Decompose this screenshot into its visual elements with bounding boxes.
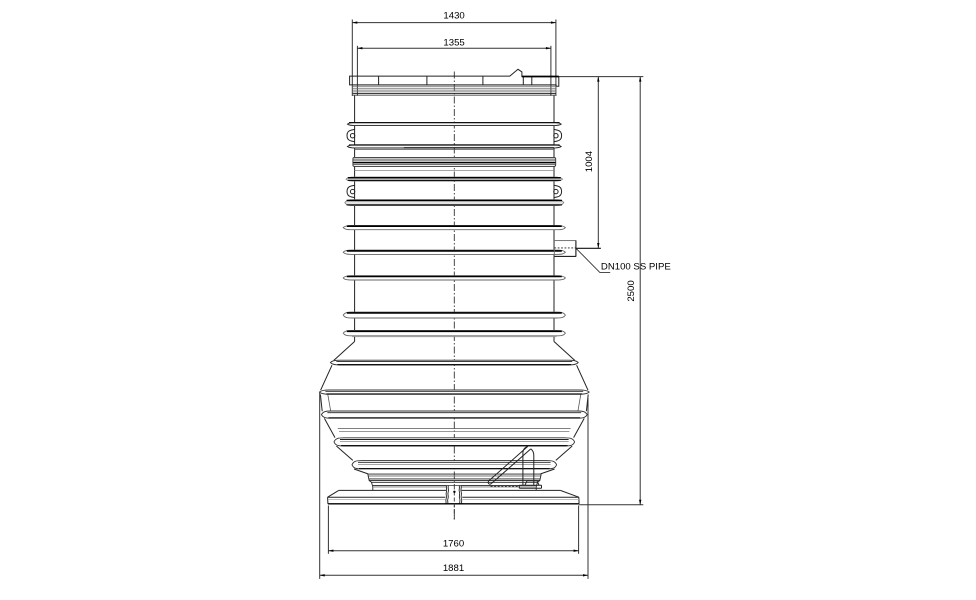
svg-text:1760: 1760: [443, 538, 464, 549]
svg-text:2500: 2500: [626, 280, 637, 301]
svg-text:1430: 1430: [443, 10, 464, 21]
svg-text:1004: 1004: [584, 150, 595, 172]
svg-text:DN100 SS PIPE: DN100 SS PIPE: [601, 262, 671, 273]
svg-text:1881: 1881: [443, 563, 464, 574]
svg-text:1355: 1355: [443, 37, 464, 48]
